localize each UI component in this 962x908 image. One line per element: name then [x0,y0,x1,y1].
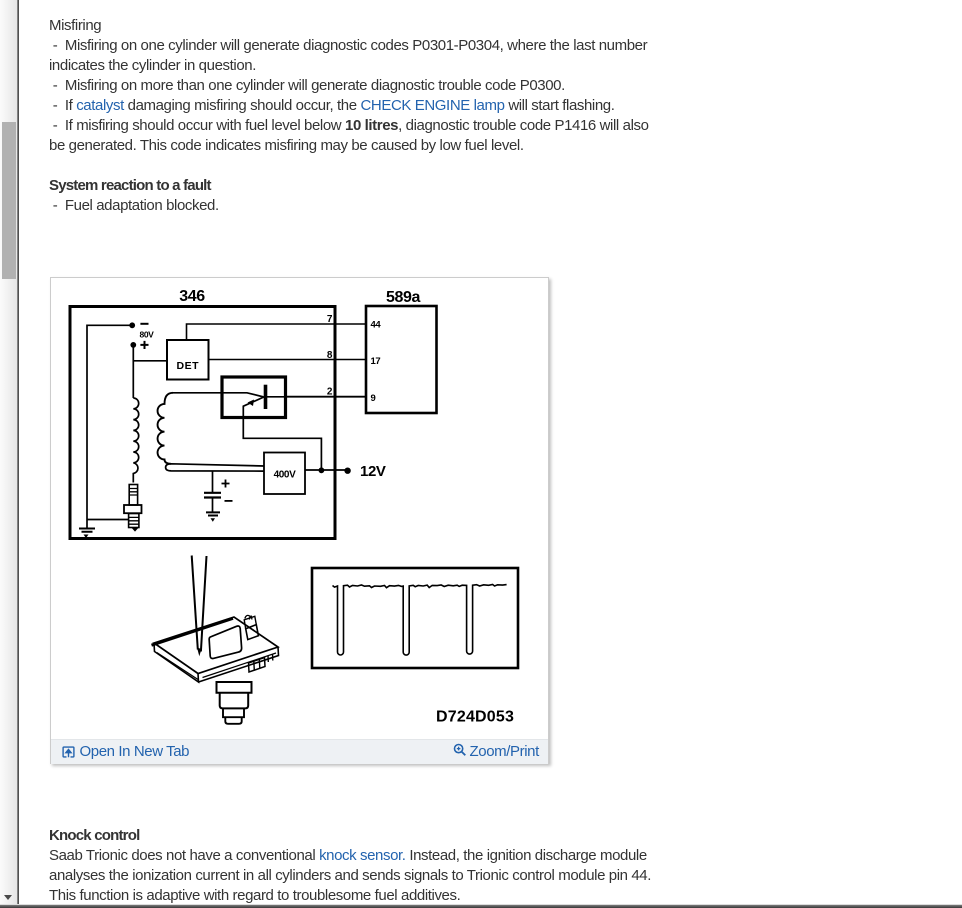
svg-text:44: 44 [370,320,381,331]
svg-text:17: 17 [370,356,380,367]
svg-text:9: 9 [370,393,375,404]
svg-text:400V: 400V [273,470,295,481]
svg-text:D724D053: D724D053 [436,709,514,726]
svg-text:80V: 80V [139,330,154,340]
svg-text:12V: 12V [360,463,386,480]
svg-text:8: 8 [326,350,332,361]
svg-text:DET: DET [176,360,199,372]
svg-text:2: 2 [326,387,332,398]
svg-text:346: 346 [179,288,205,305]
svg-text:7: 7 [326,314,332,325]
svg-text:589a: 589a [386,289,420,306]
